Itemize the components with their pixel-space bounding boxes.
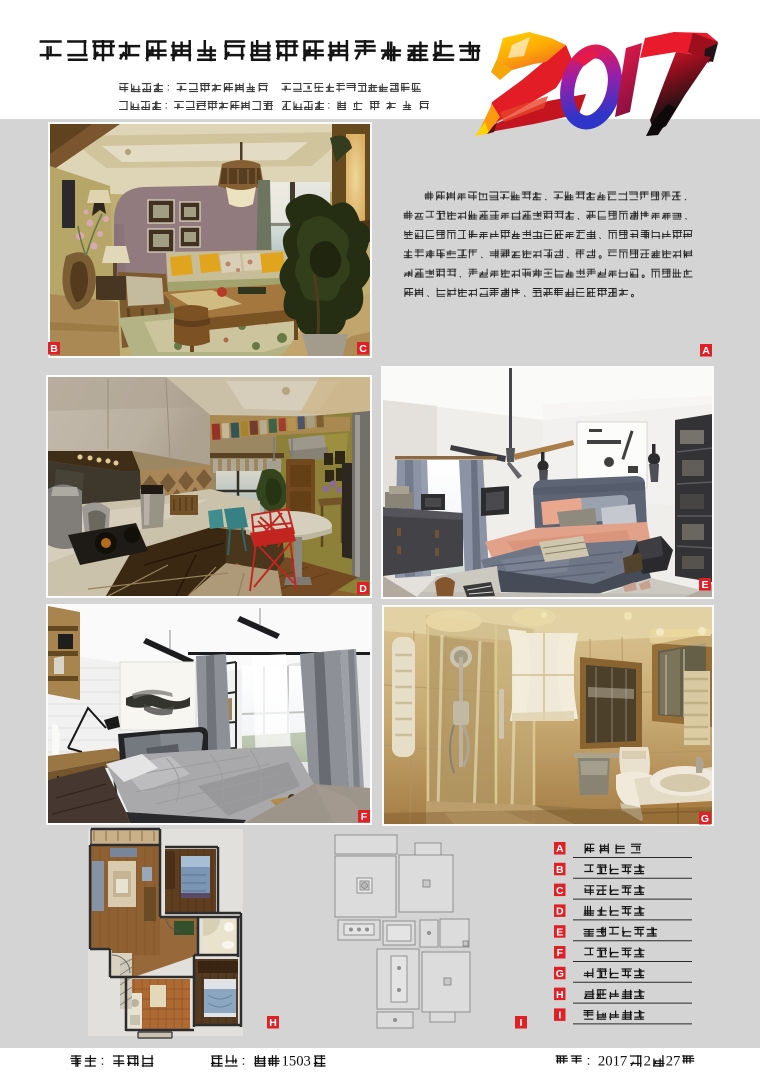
svg-text:F: F [557,947,564,959]
svg-text:E: E [556,926,563,938]
svg-text:2017: 2017 [598,1054,627,1070]
svg-text:27: 27 [666,1054,681,1070]
svg-text:1503: 1503 [282,1054,311,1070]
svg-text:D: D [556,906,564,918]
svg-text:H: H [556,989,564,1001]
svg-text:E: E [701,579,708,591]
svg-text:I: I [558,1010,561,1022]
svg-text:G: G [556,968,564,980]
svg-text:B: B [556,864,564,876]
svg-text:D: D [359,583,367,595]
svg-text:A: A [702,345,710,357]
svg-text:I: I [520,1017,523,1029]
svg-text:C: C [359,343,367,355]
svg-text:2: 2 [644,1054,651,1070]
svg-text:F: F [361,811,368,823]
svg-text:G: G [701,813,709,825]
svg-text:A: A [556,843,564,855]
svg-text:H: H [269,1017,277,1029]
svg-text:B: B [50,343,58,355]
svg-text:C: C [556,885,564,897]
